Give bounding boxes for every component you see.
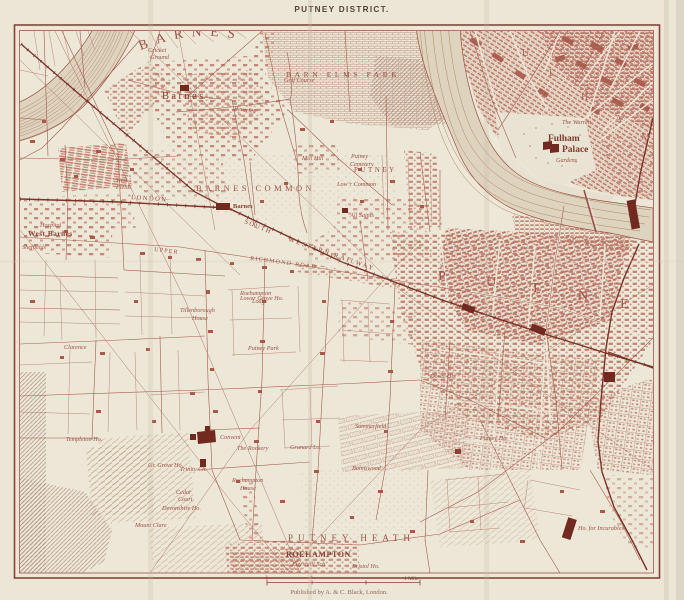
svg-text:Summerfield: Summerfield [355,423,387,430]
svg-text:A: A [615,114,623,125]
svg-text:Lowʼr Common: Lowʼr Common [336,181,376,188]
svg-text:Barnes: Barnes [233,203,253,210]
svg-text:Roehampton: Roehampton [231,477,263,484]
svg-text:T: T [531,281,540,296]
svg-text:L: L [549,68,555,79]
svg-text:The Rookery: The Rookery [237,445,269,452]
svg-text:PUTNEY HEATH: PUTNEY HEATH [288,533,415,543]
svg-text:Lodge: Lodge [251,298,268,305]
svg-text:Clarence: Clarence [64,344,87,351]
svg-text:Putney Park: Putney Park [247,345,279,352]
svg-text:Devonshire Ho.: Devonshire Ho. [161,505,201,512]
svg-text:Hospital: Hospital [39,222,62,229]
svg-text:West: West [116,177,128,184]
svg-text:West Barnes: West Barnes [28,229,73,238]
svg-text:Court: Court [178,496,193,503]
svg-text:Templeton Ho.: Templeton Ho. [66,436,102,443]
svg-text:H: H [581,92,588,103]
svg-text:Gardens: Gardens [556,157,578,164]
svg-text:M: M [641,132,650,143]
svg-text:Tillenborough: Tillenborough [180,307,215,314]
svg-text:Gr. Grove Ho.: Gr. Grove Ho. [148,462,183,469]
svg-text:All Saints: All Saints [349,212,374,219]
svg-text:Roehampton: Roehampton [239,290,271,297]
svg-text:The Warren: The Warren [562,119,591,126]
svg-text:Mill Hill: Mill Hill [301,155,324,162]
svg-text:Granard Lo.: Granard Lo. [290,444,321,451]
svg-text:Cedar: Cedar [176,489,192,496]
svg-text:E: E [620,297,629,312]
svg-text:Convent: Convent [220,434,241,441]
svg-text:Trinity Ch.: Trinity Ch. [180,466,207,473]
svg-text:N: N [578,289,588,304]
svg-text:U: U [522,48,530,59]
svg-text:BARNES COMMON: BARNES COMMON [196,183,315,193]
svg-text:Sheffields: Sheffields [22,244,47,251]
svg-text:House: House [239,485,256,492]
svg-text:P: P [438,269,446,284]
svg-text:Bristol Ho.: Bristol Ho. [352,563,380,570]
svg-text:Dover Ho.: Dover Ho. [429,373,456,380]
svg-text:Cemetery: Cemetery [350,161,374,168]
svg-text:House: House [191,315,208,322]
svg-text:Balmswood: Balmswood [352,465,382,472]
svg-text:Putney Ho.: Putney Ho. [479,435,508,442]
svg-text:Ho. for Incurables: Ho. for Incurables [577,525,624,532]
svg-text:ROEHAMPTON: ROEHAMPTON [286,550,351,559]
svg-text:Putney: Putney [350,153,368,160]
svg-text:Fields: Fields [115,184,132,191]
svg-text:Barnes: Barnes [162,91,206,102]
svg-text:Published by A. & C. Black, Lo: Published by A. & C. Black, London. [290,589,388,596]
